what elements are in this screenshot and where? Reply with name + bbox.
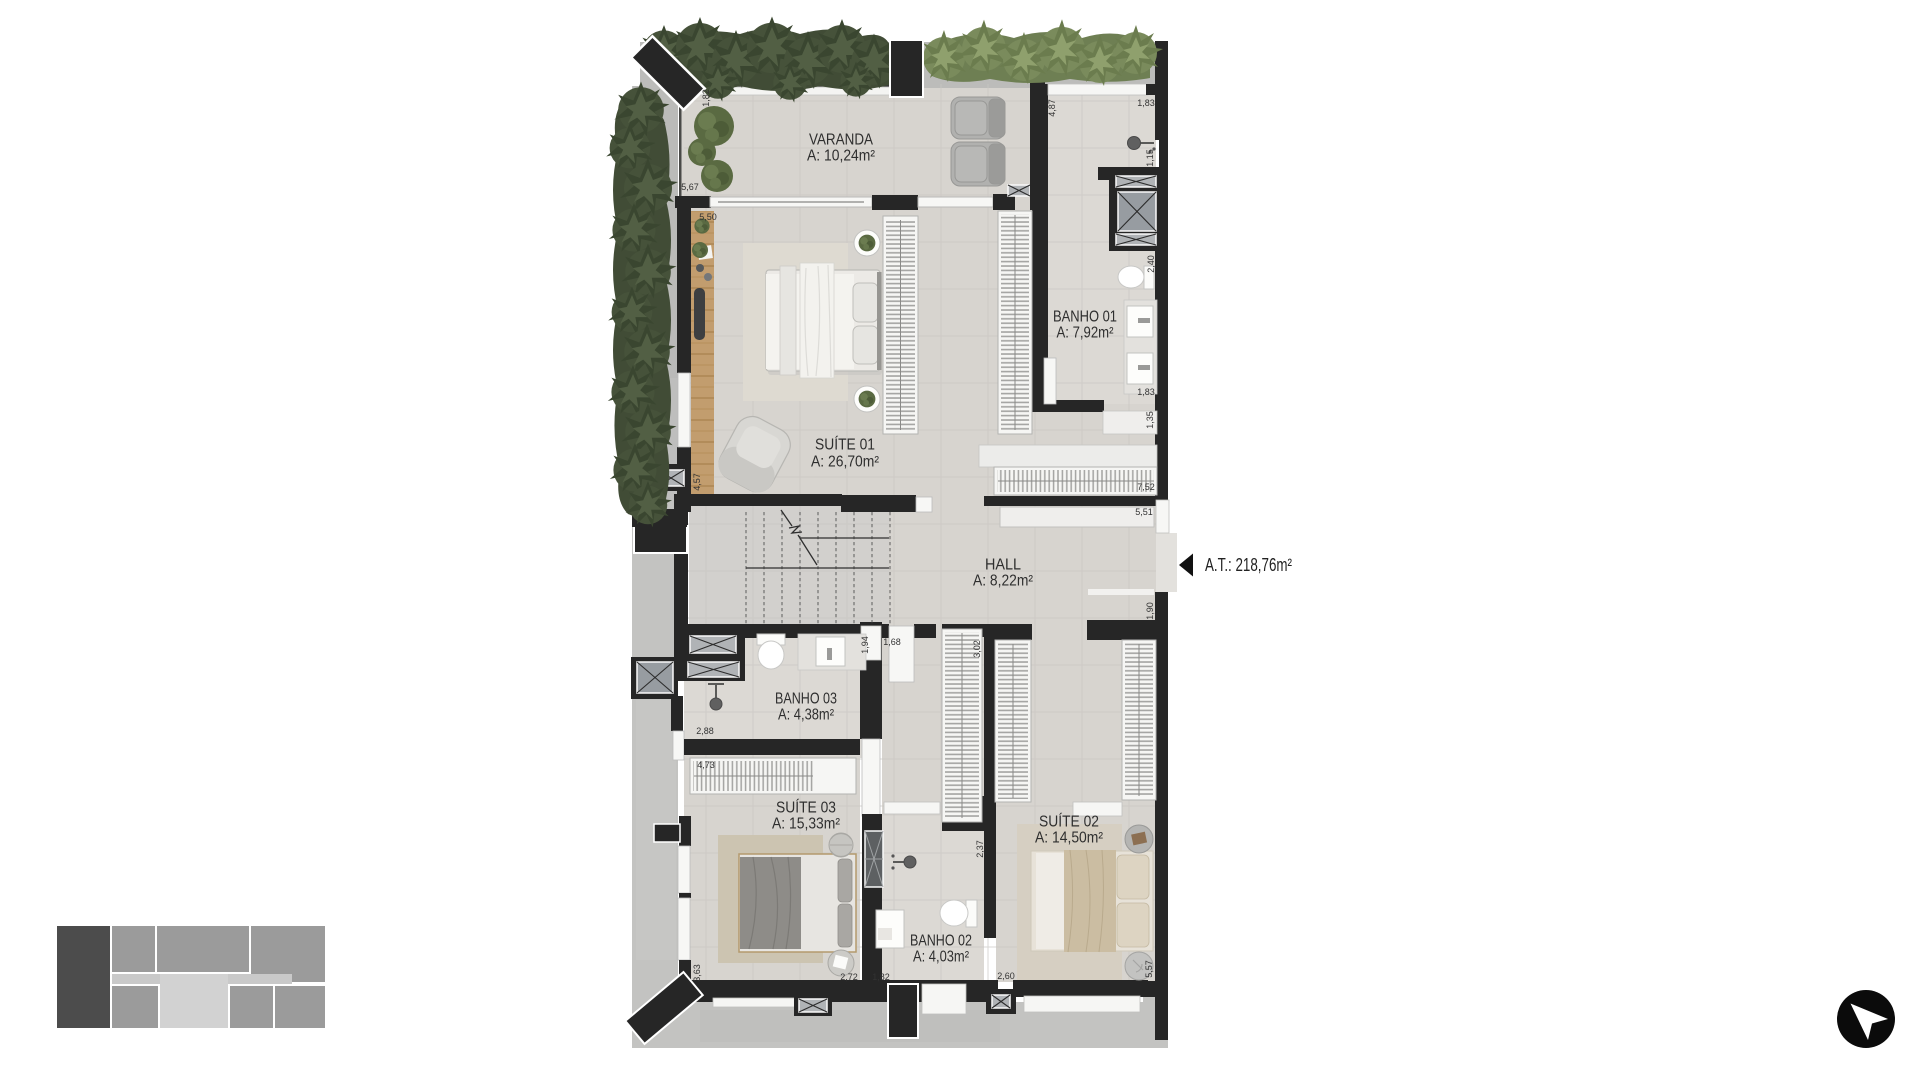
svg-text:1,35: 1,35 [1145, 411, 1155, 429]
svg-text:5,51: 5,51 [1135, 507, 1153, 517]
svg-text:2,37: 2,37 [975, 840, 985, 858]
svg-text:5,57: 5,57 [1144, 960, 1154, 978]
svg-text:4,87: 4,87 [1047, 99, 1057, 117]
svg-text:1,90: 1,90 [1145, 602, 1155, 620]
svg-text:4,57: 4,57 [692, 473, 702, 491]
svg-text:A: 8,22m²: A: 8,22m² [973, 573, 1033, 590]
svg-text:5,67: 5,67 [681, 182, 699, 192]
svg-text:1,68: 1,68 [883, 637, 901, 647]
svg-text:4,73: 4,73 [697, 760, 715, 770]
svg-text:3,63: 3,63 [692, 964, 702, 982]
svg-text:2,60: 2,60 [997, 971, 1015, 981]
svg-text:A: 4,38m²: A: 4,38m² [778, 707, 834, 724]
svg-text:1,83: 1,83 [1137, 387, 1155, 397]
svg-text:2,72: 2,72 [840, 972, 858, 982]
svg-text:1,82: 1,82 [872, 972, 890, 982]
svg-text:1,83: 1,83 [1137, 98, 1155, 108]
svg-text:HALL: HALL [985, 557, 1021, 574]
svg-text:1,82: 1,82 [701, 89, 711, 107]
svg-text:SUÍTE 02: SUÍTE 02 [1039, 814, 1099, 831]
svg-text:SUÍTE 01: SUÍTE 01 [815, 437, 875, 454]
svg-text:5,50: 5,50 [699, 212, 717, 222]
svg-text:A: 7,92m²: A: 7,92m² [1057, 325, 1114, 342]
svg-text:1,94: 1,94 [860, 636, 870, 654]
svg-text:2,88: 2,88 [696, 726, 714, 736]
svg-text:BANHO 03: BANHO 03 [775, 691, 837, 708]
svg-text:A: 14,50m²: A: 14,50m² [1035, 830, 1103, 847]
svg-text:A.T.: 218,76m²: A.T.: 218,76m² [1205, 555, 1292, 575]
svg-text:BANHO 02: BANHO 02 [910, 933, 972, 950]
svg-text:A: 4,03m²: A: 4,03m² [913, 949, 969, 966]
svg-text:A: 26,70m²: A: 26,70m² [811, 454, 879, 471]
svg-text:2,40: 2,40 [1146, 255, 1156, 273]
svg-text:7,52: 7,52 [1137, 482, 1155, 492]
svg-text:A: 10,24m²: A: 10,24m² [807, 148, 875, 165]
svg-text:BANHO 01: BANHO 01 [1053, 309, 1117, 326]
svg-text:SUÍTE 03: SUÍTE 03 [776, 800, 836, 817]
svg-text:VARANDA: VARANDA [809, 132, 874, 149]
svg-text:A: 15,33m²: A: 15,33m² [772, 816, 840, 833]
svg-text:1,15: 1,15 [1145, 149, 1155, 167]
svg-text:3,02: 3,02 [972, 640, 982, 658]
